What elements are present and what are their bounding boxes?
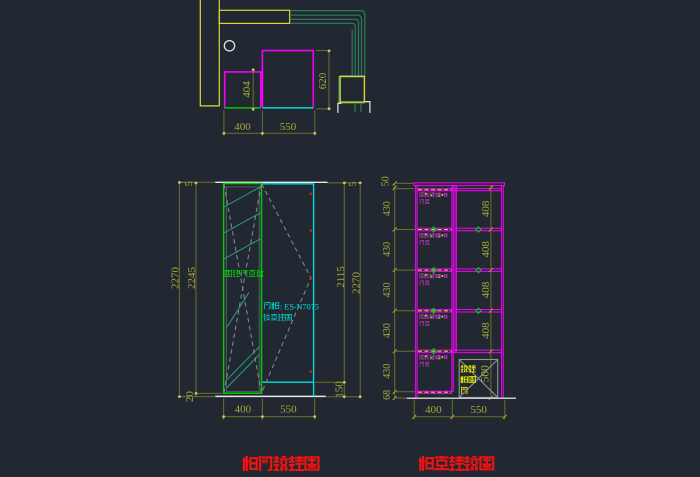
svg-text:408: 408 xyxy=(480,241,492,258)
svg-text:408: 408 xyxy=(480,200,492,217)
svg-text:408: 408 xyxy=(480,281,492,298)
svg-text:2245: 2245 xyxy=(186,267,198,290)
svg-text:550: 550 xyxy=(470,404,487,416)
svg-text:430: 430 xyxy=(382,364,393,379)
svg-text:404: 404 xyxy=(241,81,253,98)
svg-text:400: 400 xyxy=(425,404,442,416)
svg-text:430: 430 xyxy=(382,283,393,298)
svg-text:5: 5 xyxy=(184,181,195,186)
svg-text:430: 430 xyxy=(382,201,393,216)
svg-text:400: 400 xyxy=(234,121,251,133)
svg-text:2115: 2115 xyxy=(335,266,347,288)
svg-text:430: 430 xyxy=(382,323,393,338)
svg-text:50: 50 xyxy=(380,176,391,186)
svg-text:400: 400 xyxy=(235,404,252,416)
svg-text:2270: 2270 xyxy=(170,267,182,290)
svg-text:20: 20 xyxy=(184,391,196,403)
svg-text:550: 550 xyxy=(280,121,297,133)
svg-text:430: 430 xyxy=(382,242,393,257)
svg-text:550: 550 xyxy=(280,404,297,416)
svg-text:620: 620 xyxy=(317,72,329,89)
svg-text:: ES-N7075: : ES-N7075 xyxy=(280,302,319,311)
svg-text:2270: 2270 xyxy=(350,272,362,295)
svg-text:408: 408 xyxy=(480,322,492,339)
svg-text:5: 5 xyxy=(348,182,359,187)
svg-text:68: 68 xyxy=(382,390,393,400)
svg-text:150: 150 xyxy=(333,381,345,398)
